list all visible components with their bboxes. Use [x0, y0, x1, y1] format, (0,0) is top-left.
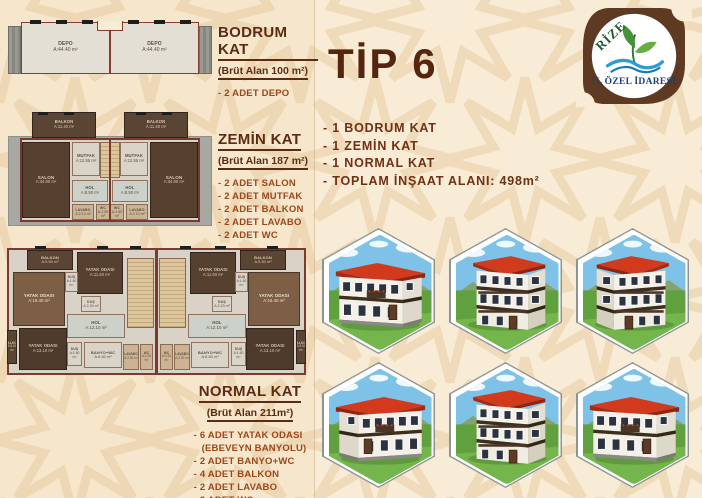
plan-shape [180, 20, 191, 24]
zemin-subtitle: (Brüt Alan 187 m²) [218, 155, 308, 170]
plan-room-salon: SALONA:34.80 m² [150, 142, 198, 218]
plan-room-banyo: BANYO+WCA:6.60 m² [191, 342, 229, 368]
bodrum-floorplan: DEPOA:44.40 m²DEPOA:44.40 m² [8, 18, 212, 80]
list-item: - 2 ADET WC [218, 229, 318, 242]
plan-room-lavabo: LAVABOA:2.30 m² [123, 344, 139, 370]
plan-room-lavabo: LAVABOA:2.10 m² [126, 204, 148, 220]
list-item: - 2 ADET MUTFAK [218, 190, 318, 203]
plan-room-hol: HOLA:12.10 m² [67, 314, 125, 338]
plan-shape [30, 20, 41, 24]
summary-list: - 1 BODRUM KAT- 1 ZEMİN KAT- 1 NORMAL KA… [323, 120, 540, 190]
list-item: - 1 NORMAL KAT [323, 155, 540, 173]
plan-room-hol: HOLA:8.50 m² [112, 180, 148, 202]
plan-room-wc: WCA:1.55 m² [110, 204, 124, 220]
list-item: - 2 ADET BANYO+WC [194, 455, 307, 468]
room-label: A:5.60 m² [296, 345, 305, 352]
room-label: A:13.10 m² [33, 349, 53, 354]
room-label: A:2.30 m² [175, 357, 189, 361]
zemin-title: ZEMİN KAT [218, 131, 301, 151]
room-label: A:16.40 m² [263, 299, 284, 304]
plan-shape [128, 20, 139, 24]
bodrum-subtitle: (Brüt Alan 100 m²) [218, 65, 308, 80]
plan-room-yatak_b: YATAK ODASIA:11.60 m² [77, 252, 123, 294]
logo-organization-text: İL ÖZEL İDARESİ [576, 77, 692, 87]
plan-room-yatak_c: YATAK ODASIA:13.10 m² [19, 328, 67, 370]
plan-room-balkon: BALKONA:11.40 m² [124, 112, 188, 138]
rize-il-ozel-idaresi-logo: RİZE İL ÖZEL İDARESİ [576, 5, 692, 107]
plan-room-dus_b: DUŞA:2.20 m² [212, 296, 232, 312]
plan-shape [155, 248, 158, 375]
room-label: A:11.40 m² [146, 125, 166, 130]
room-label: A:13.10 m² [260, 349, 280, 354]
room-label: A:2.30 m² [161, 355, 172, 362]
room-label: A:12.10 m² [85, 326, 106, 331]
plan-shape [97, 246, 108, 249]
normal-floorplan: BALKONA:5.50 m²BALKONA:5.50 m²YATAK ODAS… [5, 246, 308, 377]
plan-room-hol: HOLA:12.10 m² [188, 314, 246, 338]
plan-shape [130, 246, 141, 249]
room-label: A:8.50 m² [81, 191, 99, 196]
plan-room-balkon_yan: BALKONA:5.60 m² [296, 330, 306, 364]
room-label: A:1.55 m² [97, 210, 109, 218]
plan-room-lavabo: LAVABOA:2.30 m² [174, 344, 190, 370]
normal-feature-list: - 6 ADET YATAK ODASI(EBEVEYN BANYOLU)- 2… [194, 429, 307, 498]
brochure-page: DEPOA:44.40 m²DEPOA:44.40 m² BODRUM KAT … [0, 0, 702, 498]
plan-shape [8, 26, 21, 74]
room-label: A:34.80 m² [36, 180, 56, 185]
room-label: A:44.40 m² [53, 48, 77, 54]
room-label: A:11.60 m² [90, 273, 110, 278]
room-label: A:2.20 m² [83, 304, 99, 308]
zemin-feature-list: - 2 ADET SALON- 2 ADET MUTFAK- 2 ADET BA… [218, 177, 318, 242]
plan-room-wc: WCA:2.30 m² [140, 344, 153, 370]
plan-room-depo: DEPOA:44.40 m² [110, 22, 199, 74]
plan-room-wc: WCA:1.55 m² [96, 204, 110, 220]
normal-label-block: NORMAL KAT (Brüt Alan 211m²) - 6 ADET YA… [150, 383, 350, 498]
plan-shape [64, 112, 74, 115]
plan-shape [109, 138, 111, 222]
plan-room-lavabo: LAVABOA:2.10 m² [72, 204, 94, 220]
room-label: A:11.60 m² [203, 273, 223, 278]
plan-room-balkon_yan: BALKONA:5.60 m² [7, 330, 17, 364]
plan-room-yatak_a: YATAK ODASIA:16.40 m² [13, 272, 65, 326]
plan-room-dus_b: DUŞA:2.20 m² [81, 296, 101, 312]
plan-room-dus_c: DUŞA:1.60 m² [231, 342, 246, 366]
plan-shape [56, 20, 67, 24]
logo-emblem-icon [576, 5, 692, 107]
room-label: A:5.50 m² [254, 260, 271, 264]
room-label: A:1.60 m² [232, 352, 245, 360]
room-label: A:2.10 m² [129, 212, 145, 216]
plan-room-banyo: BANYO+WCA:6.60 m² [84, 342, 122, 368]
plan-room-yatak_b: YATAK ODASIA:11.60 m² [190, 252, 236, 294]
plan-shape [159, 258, 186, 328]
list-item: - 4 ADET BALKON [194, 468, 307, 481]
bodrum-label-block: BODRUM KAT (Brüt Alan 100 m²) - 2 ADET D… [218, 24, 318, 100]
room-label: A:44.40 m² [142, 48, 166, 54]
plan-shape [136, 112, 146, 115]
plan-room-salon: SALONA:34.80 m² [22, 142, 70, 218]
list-item: - 1 ZEMİN KAT [323, 138, 540, 156]
zemin-label-block: ZEMİN KAT (Brüt Alan 187 m²) - 2 ADET SA… [218, 131, 318, 242]
plan-room-dus_c: DUŞA:1.60 m² [67, 342, 82, 366]
plan-shape [82, 20, 93, 24]
plan-shape [162, 112, 172, 115]
plan-room-balkon_on: BALKONA:5.50 m² [27, 250, 73, 270]
room-label: A:2.20 m² [214, 304, 230, 308]
list-item: - TOPLAM İNŞAAT ALANI: 498m² [323, 173, 540, 191]
plan-shape [199, 26, 212, 74]
room-label: A:8.50 m² [121, 191, 139, 196]
room-label: A:12.55 m² [124, 159, 144, 164]
room-label: A:6.60 m² [201, 355, 218, 359]
page-title: TİP 6 [328, 40, 438, 88]
normal-subtitle: (Brüt Alan 211m²) [207, 407, 294, 422]
plan-shape [180, 246, 191, 249]
plan-shape [154, 20, 165, 24]
room-label: A:1.55 m² [111, 210, 123, 218]
plan-shape [127, 258, 154, 328]
room-label: A:1.60 m² [66, 280, 77, 288]
room-label: A:5.60 m² [7, 345, 16, 352]
list-item: - 2 ADET DEPO [218, 87, 318, 100]
plan-room-mutfak: MUTFAKA:12.55 m² [72, 142, 100, 176]
room-label: A:12.55 m² [76, 159, 96, 164]
plan-shape [97, 21, 123, 31]
plan-shape [215, 246, 226, 249]
room-label: A:1.60 m² [236, 280, 247, 288]
list-item: - 2 ADET BALKON [218, 203, 318, 216]
room-label: A:2.30 m² [124, 357, 138, 361]
plan-shape [35, 246, 46, 249]
plan-shape [38, 112, 48, 115]
list-item: - 2 ADET LAVABO [218, 216, 318, 229]
plan-room-wc: WCA:2.30 m² [160, 344, 173, 370]
room-label: A:2.30 m² [141, 355, 152, 362]
plan-room-balkon_on: BALKONA:5.50 m² [240, 250, 286, 270]
room-label: A:6.60 m² [94, 355, 111, 359]
plan-room-hol: HOLA:8.50 m² [72, 180, 108, 202]
plan-room-dus_a: DUŞA:1.60 m² [65, 272, 78, 292]
normal-title: NORMAL KAT [199, 383, 301, 403]
plan-shape [267, 246, 278, 249]
list-item: - 1 BODRUM KAT [323, 120, 540, 138]
room-label: A:5.50 m² [41, 260, 58, 264]
bodrum-title: BODRUM KAT [218, 24, 318, 61]
plan-shape [110, 142, 120, 178]
list-item: - 2 ADET LAVABO [194, 481, 307, 494]
room-label: A:11.40 m² [54, 125, 74, 130]
plan-room-mutfak: MUTFAKA:12.55 m² [120, 142, 148, 176]
plan-room-yatak_a: YATAK ODASIA:16.40 m² [248, 272, 300, 326]
bodrum-feature-list: - 2 ADET DEPO [218, 87, 318, 100]
plan-room-yatak_c: YATAK ODASIA:13.10 m² [246, 328, 294, 370]
room-label: A:1.60 m² [68, 352, 81, 360]
room-label: A:16.40 m² [28, 299, 49, 304]
list-item: (EBEVEYN BANYOLU) [194, 442, 307, 455]
list-item: - 2 ADET SALON [218, 177, 318, 190]
zemin-floorplan: BALKONA:11.40 m²BALKONA:11.40 m²SALONA:3… [8, 112, 212, 230]
room-label: A:12.10 m² [206, 326, 227, 331]
plan-room-balkon: BALKONA:11.40 m² [32, 112, 96, 138]
list-item: - 2 ADET WC [194, 494, 307, 498]
list-item: - 6 ADET YATAK ODASI [194, 429, 307, 442]
room-label: A:2.10 m² [75, 212, 91, 216]
plan-room-dus_a: DUŞA:1.60 m² [235, 272, 248, 292]
room-label: A:34.80 m² [164, 180, 184, 185]
